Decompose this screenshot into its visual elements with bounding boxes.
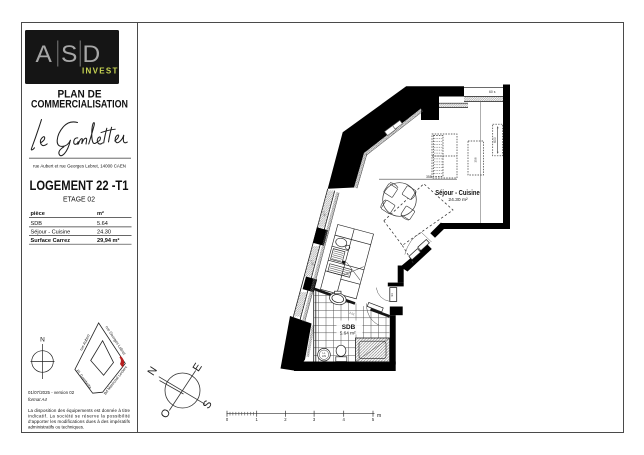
svg-text:5.64: 5.64 <box>97 221 108 227</box>
svg-text:Surface Carrez: Surface Carrez <box>31 238 71 244</box>
svg-text:format A4: format A4 <box>28 397 47 402</box>
svg-text:24.30 m²: 24.30 m² <box>448 197 468 203</box>
svg-text:29,94 m²: 29,94 m² <box>97 237 120 244</box>
svg-text:SDB: SDB <box>31 221 43 227</box>
svg-text:60 s: 60 s <box>489 90 496 94</box>
svg-text:24.30: 24.30 <box>97 229 111 235</box>
svg-text:01/07/2025 - version 02: 01/07/2025 - version 02 <box>28 390 75 395</box>
svg-text:S: S <box>61 41 77 68</box>
svg-text:Séjour - Cuisine: Séjour - Cuisine <box>435 188 480 197</box>
svg-text:229: 229 <box>322 355 327 358</box>
svg-text:A: A <box>36 41 53 68</box>
svg-text:N: N <box>40 337 45 344</box>
svg-text:COMMERCIALISATION: COMMERCIALISATION <box>31 99 128 111</box>
svg-text:INVEST: INVEST <box>82 67 119 76</box>
svg-text:administratifs ou techniques.: administratifs ou techniques. <box>28 424 84 429</box>
svg-text:D: D <box>83 41 101 68</box>
svg-text:m²: m² <box>97 210 104 217</box>
svg-text:Séjour - Cuisine: Séjour - Cuisine <box>31 229 71 235</box>
svg-text:rue Aubert et rue Georges Lebr: rue Aubert et rue Georges Lebret, 14000 … <box>33 163 126 168</box>
svg-text:358: 358 <box>474 157 478 162</box>
svg-text:ETAGE 02: ETAGE 02 <box>63 194 95 203</box>
svg-text:pièce: pièce <box>31 211 45 217</box>
svg-text:m: m <box>377 413 381 419</box>
svg-text:indicatif. La société se réser: indicatif. La société se réserve la poss… <box>28 413 131 418</box>
svg-text:5.64 m²: 5.64 m² <box>340 330 356 335</box>
svg-text:93: 93 <box>390 293 394 297</box>
svg-text:La disposition des équipements: La disposition des équipements est donné… <box>28 408 131 413</box>
svg-text:358: 358 <box>426 175 432 179</box>
svg-text:LOGEMENT 22 -T1: LOGEMENT 22 -T1 <box>30 178 129 193</box>
svg-text:d’apporter les modifications d: d’apporter les modifications dues à des … <box>28 419 131 424</box>
svg-text:600: 600 <box>493 137 497 143</box>
